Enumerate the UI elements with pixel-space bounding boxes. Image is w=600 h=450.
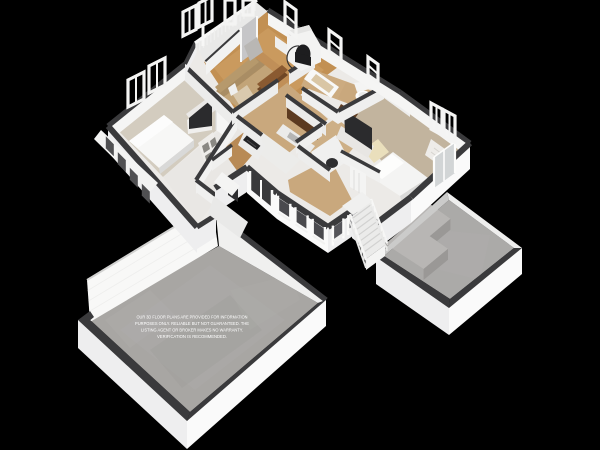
svg-text:LISTING AGENT OR BROKER MAKES: LISTING AGENT OR BROKER MAKES NO WARRANT… — [141, 328, 243, 333]
svg-text:OUR 3D FLOOR PLANS ARE PROVIDE: OUR 3D FLOOR PLANS ARE PROVIDED FOR INFO… — [137, 315, 248, 320]
svg-text:PURPOSES ONLY. RELIABLE BUT NO: PURPOSES ONLY. RELIABLE BUT NOT GUARANTE… — [135, 321, 249, 326]
svg-text:VERIFICATION IS RECOMMENDED.: VERIFICATION IS RECOMMENDED. — [157, 334, 227, 339]
